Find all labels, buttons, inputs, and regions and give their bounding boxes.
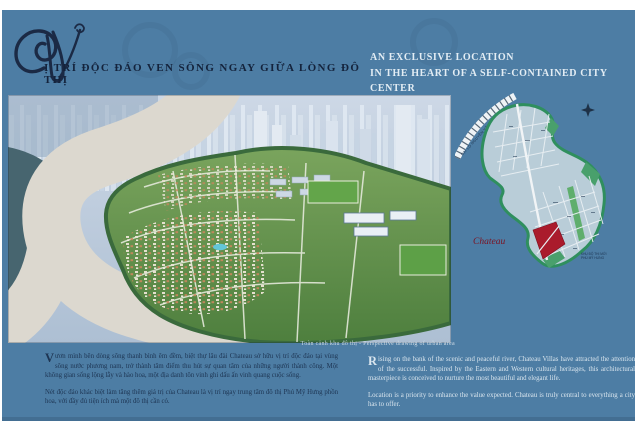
map-note-line2: PHÚ MỸ HƯNG xyxy=(581,255,605,260)
compass-icon xyxy=(581,103,595,117)
vi-paragraph-1-text: ươn mình bên dòng sông thanh bình êm đềm… xyxy=(45,353,338,379)
title-en-line1: AN EXCLUSIVE LOCATION xyxy=(370,50,630,66)
location-map: ĐẠI LỘ NGUYỄN VĂN LINH xyxy=(455,92,637,292)
vi-paragraph-1: Vươn mình bên dòng sông thanh bình êm đề… xyxy=(45,352,338,381)
brochure-page: Ị TRÍ ĐỘC ĐÁO VEN SÔNG NGAY GIỮA LÒNG ĐÔ… xyxy=(0,0,640,421)
site-label: Chateau xyxy=(473,237,505,247)
vi-dropcap: V xyxy=(45,352,54,365)
page-title-english: AN EXCLUSIVE LOCATION IN THE HEART OF A … xyxy=(370,50,630,97)
image-caption: Toàn cảnh khu đô thị - Perspective drawi… xyxy=(235,341,455,347)
sports-field xyxy=(308,181,358,203)
vi-paragraph-2: Nét độc đáo khác biệt làm tăng thêm giá … xyxy=(45,388,338,407)
body-copy-vietnamese: Vươn mình bên dòng sông thanh bình êm đề… xyxy=(45,352,338,414)
page-title-vietnamese: Ị TRÍ ĐỘC ĐÁO VEN SÔNG NGAY GIỮA LÒNG ĐÔ… xyxy=(44,62,374,86)
sports-field xyxy=(400,245,446,275)
footer-shade xyxy=(2,417,635,421)
en-paragraph-2: Location is a priority to enhance the va… xyxy=(368,391,635,410)
body-copy-english: Rising on the bank of the scenic and pea… xyxy=(368,355,635,417)
en-paragraph-1-text: ising on the bank of the scenic and peac… xyxy=(368,356,635,382)
pool xyxy=(213,244,227,250)
en-dropcap: R xyxy=(368,355,377,368)
en-paragraph-1: Rising on the bank of the scenic and pea… xyxy=(368,355,635,384)
aerial-rendering-image xyxy=(8,95,451,343)
villa-peninsula xyxy=(106,148,451,343)
